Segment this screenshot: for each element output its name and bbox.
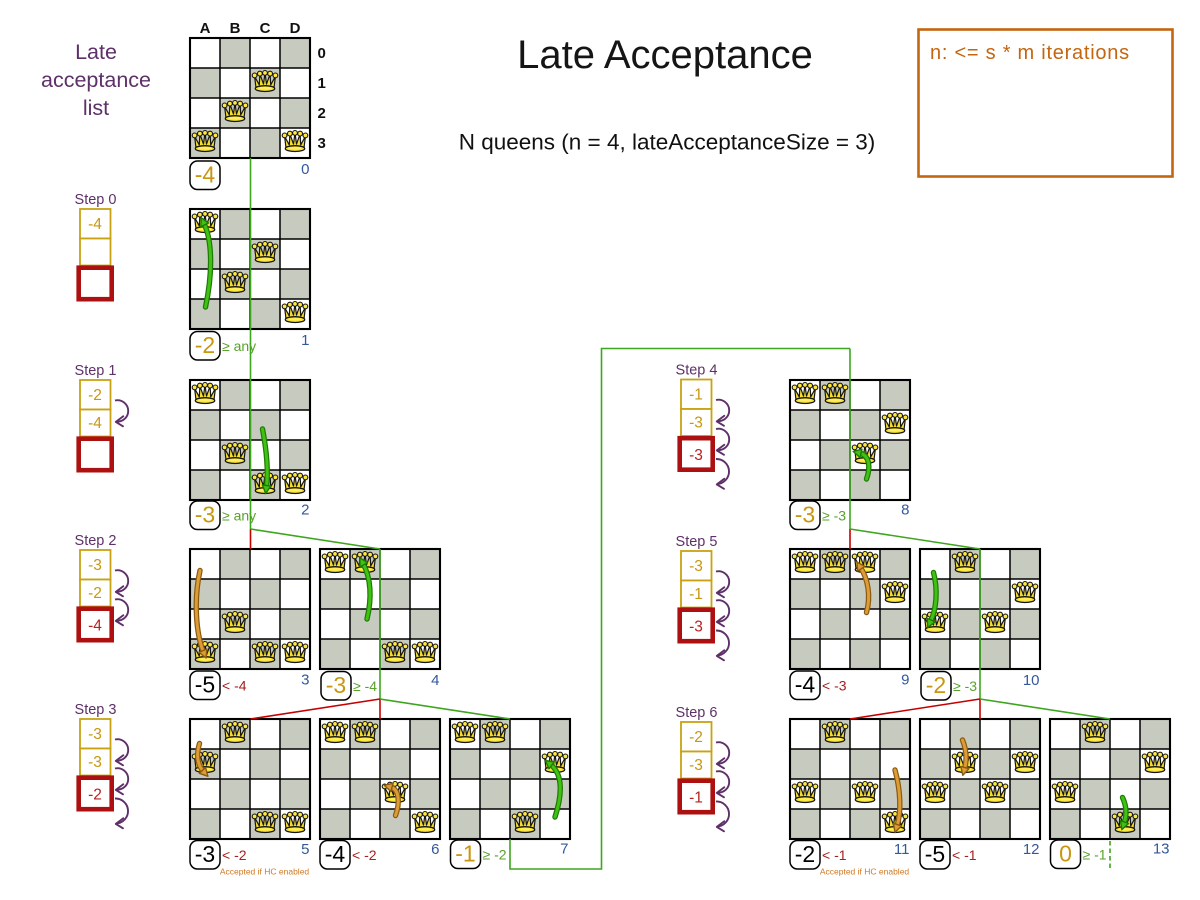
svg-text:< -4: < -4: [222, 678, 247, 694]
svg-text:D: D: [290, 20, 301, 37]
svg-text:-3: -3: [689, 619, 703, 636]
svg-text:-5: -5: [925, 841, 945, 867]
svg-text:-2: -2: [88, 387, 102, 404]
svg-text:acceptance: acceptance: [41, 68, 151, 92]
svg-text:-3: -3: [689, 757, 703, 774]
svg-text:-3: -3: [195, 841, 215, 867]
svg-text:≥ -3: ≥ -3: [822, 508, 846, 524]
svg-text:6: 6: [431, 841, 439, 858]
svg-text:-3: -3: [689, 415, 703, 432]
svg-text:-4: -4: [88, 415, 102, 432]
svg-text:7: 7: [560, 841, 568, 858]
svg-text:0: 0: [318, 45, 326, 62]
svg-text:12: 12: [1023, 841, 1040, 858]
svg-text:≥ -4: ≥ -4: [353, 678, 377, 694]
svg-text:13: 13: [1153, 841, 1170, 858]
svg-text:3: 3: [318, 135, 326, 152]
svg-text:-3: -3: [795, 502, 815, 528]
svg-text:Step 2: Step 2: [75, 533, 117, 549]
svg-text:list: list: [83, 96, 109, 120]
svg-text:Step 4: Step 4: [676, 363, 718, 379]
svg-text:Step 1: Step 1: [75, 363, 117, 379]
svg-text:Step 5: Step 5: [676, 534, 718, 550]
svg-text:2: 2: [318, 105, 326, 122]
svg-text:Step 0: Step 0: [75, 192, 117, 208]
svg-text:8: 8: [901, 502, 909, 519]
svg-text:-4: -4: [195, 162, 216, 188]
svg-text:-2: -2: [88, 585, 102, 602]
svg-text:N queens (n = 4, lateAcceptanc: N queens (n = 4, lateAcceptanceSize = 3): [459, 130, 876, 155]
svg-text:≥ -1: ≥ -1: [1083, 847, 1107, 863]
svg-text:2: 2: [301, 502, 309, 519]
svg-text:< -2: < -2: [222, 847, 247, 863]
svg-text:≥ -2: ≥ -2: [483, 847, 507, 863]
svg-text:-4: -4: [88, 618, 102, 635]
svg-text:Late Acceptance: Late Acceptance: [517, 33, 813, 77]
svg-text:-4: -4: [795, 672, 816, 698]
svg-text:-2: -2: [195, 332, 215, 358]
svg-text:C: C: [260, 20, 271, 37]
svg-text:11: 11: [894, 841, 910, 858]
svg-text:0: 0: [1059, 841, 1072, 867]
svg-text:9: 9: [901, 672, 909, 689]
svg-text:-3: -3: [88, 726, 102, 743]
svg-text:-3: -3: [88, 754, 102, 771]
svg-text:-1: -1: [689, 387, 703, 404]
svg-text:-1: -1: [455, 841, 475, 867]
svg-text:5: 5: [301, 841, 309, 858]
svg-text:≥ -3: ≥ -3: [953, 678, 977, 694]
svg-text:-4: -4: [325, 841, 346, 867]
svg-text:B: B: [230, 20, 241, 37]
svg-text:-3: -3: [88, 557, 102, 574]
svg-text:-2: -2: [795, 841, 815, 867]
svg-text:-2: -2: [926, 672, 946, 698]
svg-text:Step 6: Step 6: [676, 705, 718, 721]
svg-text:-1: -1: [689, 790, 703, 807]
svg-text:< -1: < -1: [822, 847, 847, 863]
svg-text:< -1: < -1: [952, 847, 977, 863]
svg-text:Accepted if HC enabled: Accepted if HC enabled: [220, 867, 310, 877]
svg-text:3: 3: [301, 672, 309, 689]
svg-text:≥ any: ≥ any: [222, 508, 256, 524]
svg-text:< -2: < -2: [352, 847, 377, 863]
svg-text:-2: -2: [689, 729, 703, 746]
svg-text:1: 1: [318, 75, 326, 92]
svg-text:-3: -3: [689, 447, 703, 464]
svg-text:-3: -3: [195, 502, 215, 528]
svg-text:0: 0: [301, 161, 309, 178]
svg-text:-2: -2: [88, 787, 102, 804]
svg-text:-4: -4: [88, 216, 102, 233]
svg-text:-3: -3: [326, 672, 346, 698]
svg-text:10: 10: [1023, 672, 1040, 689]
svg-text:-1: -1: [689, 586, 703, 603]
svg-text:Accepted if HC enabled: Accepted if HC enabled: [820, 867, 910, 877]
svg-text:< -3: < -3: [822, 678, 847, 694]
svg-text:A: A: [200, 20, 211, 37]
svg-text:≥ any: ≥ any: [222, 338, 256, 354]
svg-text:4: 4: [431, 672, 439, 689]
svg-text:1: 1: [301, 332, 309, 349]
svg-text:n: <= s * m iterations: n: <= s * m iterations: [930, 42, 1130, 64]
svg-text:-3: -3: [689, 558, 703, 575]
svg-text:Late: Late: [75, 40, 117, 64]
svg-text:-5: -5: [195, 672, 215, 698]
svg-text:Step 3: Step 3: [75, 702, 117, 718]
